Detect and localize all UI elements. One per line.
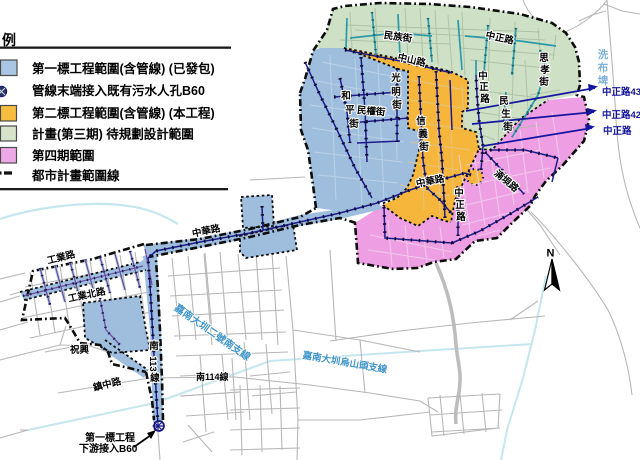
svg-text:信: 信	[416, 115, 426, 127]
svg-text:埤: 埤	[598, 74, 609, 87]
svg-text:路: 路	[480, 93, 490, 105]
svg-text:第一標工程: 第一標工程	[85, 431, 135, 444]
svg-text:孝: 孝	[539, 64, 550, 76]
svg-text:民: 民	[499, 96, 509, 107]
svg-text:街: 街	[391, 99, 402, 111]
svg-text:中: 中	[454, 187, 464, 199]
svg-text:街: 街	[538, 76, 549, 88]
svg-text:街: 街	[348, 118, 359, 130]
svg-text:生: 生	[501, 108, 511, 120]
svg-text:洗: 洗	[598, 48, 609, 61]
svg-text:中正路42: 中正路42	[602, 109, 640, 121]
svg-text:線: 線	[150, 372, 160, 384]
svg-text:南114線: 南114線	[196, 371, 229, 382]
svg-text:下游接入B60: 下游接入B60	[79, 442, 138, 455]
svg-text:管線末端接入既有污水人孔B60: 管線末端接入既有污水人孔B60	[32, 83, 205, 98]
svg-text:中正路: 中正路	[603, 125, 632, 137]
svg-text:光: 光	[390, 72, 401, 84]
svg-text:正: 正	[455, 200, 465, 211]
svg-text:第一標工程範圍(含管線) (已發包): 第一標工程範圍(含管線) (已發包)	[32, 61, 215, 76]
svg-text:N: N	[547, 248, 555, 260]
svg-text:街: 街	[418, 141, 429, 153]
svg-text:中: 中	[478, 70, 488, 82]
svg-text:民權街: 民權街	[356, 104, 386, 118]
svg-text:明: 明	[391, 87, 401, 98]
svg-text:街: 街	[502, 121, 513, 133]
svg-text:第四期範圍: 第四期範圍	[32, 148, 95, 163]
svg-text:義: 義	[418, 128, 428, 140]
svg-text:路: 路	[456, 211, 466, 223]
svg-text:113: 113	[147, 356, 158, 371]
svg-text:例: 例	[2, 32, 16, 48]
svg-text:南: 南	[149, 340, 159, 352]
svg-text:計畫(第三期) 待規劃設計範圍: 計畫(第三期) 待規劃設計範圍	[32, 127, 194, 142]
svg-text:布: 布	[598, 61, 609, 74]
svg-text:正: 正	[479, 82, 489, 93]
svg-text:都市計畫範圍線: 都市計畫範圍線	[31, 168, 120, 183]
svg-text:思: 思	[539, 53, 549, 64]
svg-text:中正路43: 中正路43	[602, 86, 640, 98]
svg-text:祝興: 祝興	[70, 344, 90, 356]
svg-text:和: 和	[340, 90, 351, 102]
svg-text:第二標工程範圍(含管線) (本工程): 第二標工程範圍(含管線) (本工程)	[32, 106, 215, 121]
svg-text:平: 平	[345, 105, 355, 116]
